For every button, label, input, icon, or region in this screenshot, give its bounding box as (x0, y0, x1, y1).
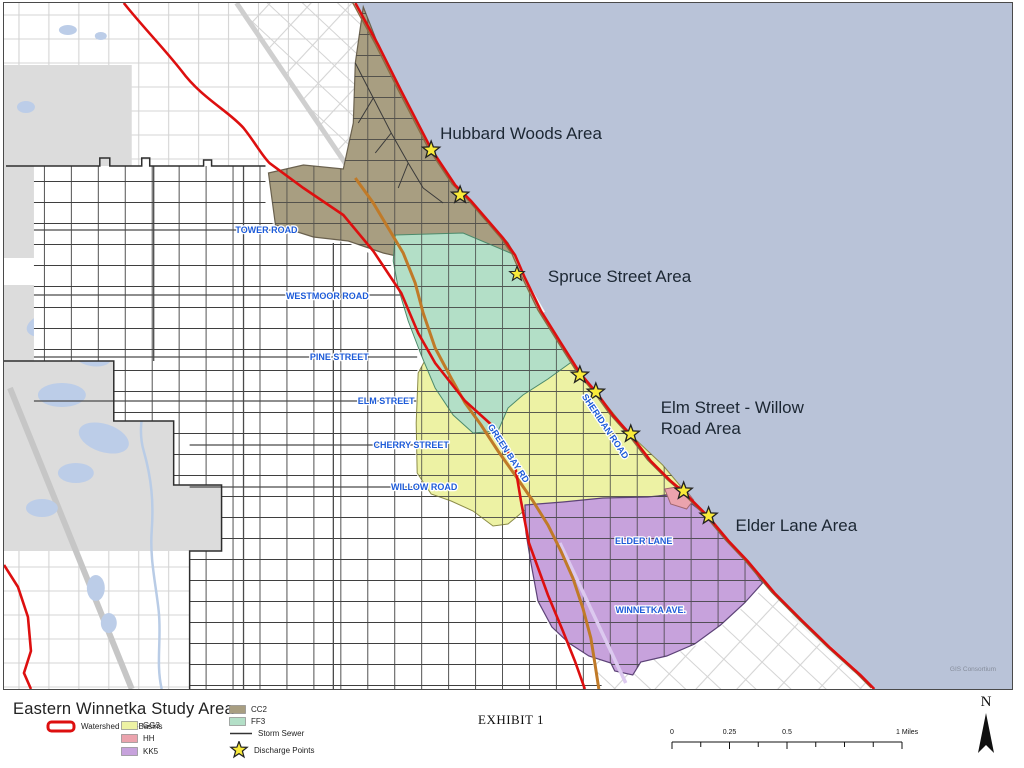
street-label-westmoor-road: WESTMOOR ROAD (286, 291, 369, 301)
ff3-swatch (230, 718, 246, 726)
discharge-star-icon (229, 741, 249, 759)
area-label-elm-willow-line2: Road Area (661, 419, 742, 438)
legend-column-basins-left: GG3 HH KK5 (121, 721, 160, 756)
legend-item-label: FF3 (251, 717, 265, 726)
legend-item-ff3: FF3 (229, 717, 314, 726)
gg3-swatch (122, 722, 138, 730)
legend-item-label: KK5 (143, 747, 158, 756)
legend-item-label: HH (143, 734, 155, 743)
exhibit-page: TOWER ROAD WESTMOOR ROAD PINE STREET ELM… (0, 0, 1024, 768)
legend-item-cc2: CC2 (229, 705, 314, 714)
street-label-elm-street: ELM STREET (358, 396, 415, 406)
street-label-elder-lane: ELDER LANE (615, 536, 672, 546)
area-label-spruce-street: Spruce Street Area (548, 267, 692, 286)
legend-item-label: CC2 (251, 705, 267, 714)
scale-bar: 0 0.25 0.5 1 Miles (660, 724, 960, 756)
street-label-willow-road: WILLOW ROAD (391, 482, 458, 492)
legend-item-label: Storm Sewer (258, 729, 304, 738)
exhibit-title: EXHIBIT 1 (478, 712, 544, 728)
scale-tick-0: 0 (670, 729, 674, 736)
legend-item-gg3: GG3 (121, 721, 160, 730)
legend-item-hh: HH (121, 734, 160, 743)
map-image: TOWER ROAD WESTMOOR ROAD PINE STREET ELM… (3, 2, 1013, 690)
legend-item-storm-sewer: Storm Sewer (229, 729, 314, 738)
cc2-swatch (230, 706, 246, 714)
scale-tick-025: 0.25 (723, 729, 737, 736)
legend-column-basins-right: CC2 FF3 Storm Sewer Discharge Points (229, 705, 314, 759)
legend-title: Eastern Winnetka Study Area (13, 700, 234, 719)
kk5-swatch (122, 748, 138, 756)
map-canvas: TOWER ROAD WESTMOOR ROAD PINE STREET ELM… (4, 3, 1012, 689)
street-label-cherry-street: CHERRY STREET (374, 440, 450, 450)
southwest-streets (4, 551, 190, 689)
north-label: N (968, 694, 1004, 711)
street-label-tower-road: TOWER ROAD (235, 225, 298, 235)
area-label-hubbard-woods: Hubbard Woods Area (440, 124, 602, 143)
area-label-elm-willow-line1: Elm Street - Willow (661, 398, 805, 417)
legend-item-kk5: KK5 (121, 747, 160, 756)
north-arrow: N (968, 694, 1004, 755)
street-label-pine-street: PINE STREET (310, 352, 369, 362)
legend-item-label: Discharge Points (254, 746, 314, 755)
hh-swatch (122, 735, 138, 743)
legend-item-discharge-points: Discharge Points (229, 741, 314, 759)
area-label-elder-lane: Elder Lane Area (736, 516, 858, 535)
scale-tick-05: 0.5 (782, 729, 792, 736)
gis-credit: GIS Consortium (950, 666, 996, 673)
legend-item-label: GG3 (143, 721, 160, 730)
storm-sewer-line-icon (229, 729, 253, 738)
scale-tick-1mile: 1 Miles (896, 729, 919, 736)
legend-bar: Eastern Winnetka Study Area Watershed Su… (0, 690, 1024, 768)
north-arrow-icon (974, 711, 998, 755)
street-label-winnetka-ave: WINNETKA AVE. (615, 605, 685, 615)
watershed-swatch (46, 720, 76, 733)
